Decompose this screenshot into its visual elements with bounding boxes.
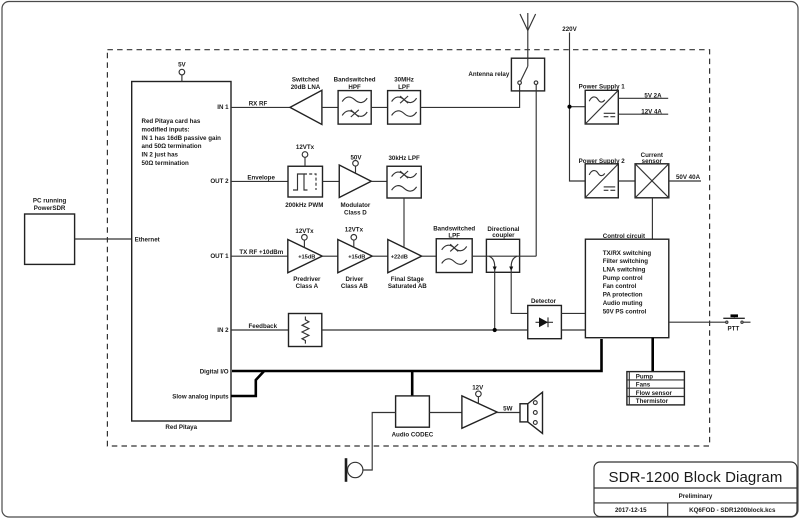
svg-text:TX/RX switching: TX/RX switching [603, 250, 652, 257]
svg-text:LPF: LPF [448, 233, 460, 240]
svg-text:Saturated AB: Saturated AB [388, 283, 427, 290]
svg-text:Fan control: Fan control [603, 283, 637, 290]
svg-text:Fans: Fans [636, 382, 651, 389]
svg-text:Final Stage: Final Stage [391, 276, 425, 283]
svg-text:Pump control: Pump control [603, 275, 643, 282]
svg-text:KQ6FOD - SDR1200block.kcs: KQ6FOD - SDR1200block.kcs [689, 507, 776, 514]
svg-text:Control circuit: Control circuit [603, 233, 645, 240]
svg-text:12VTx: 12VTx [345, 227, 364, 234]
svg-text:RX RF: RX RF [249, 100, 268, 107]
svg-text:Driver: Driver [345, 276, 363, 283]
svg-text:Pump: Pump [636, 373, 653, 380]
svg-text:Modulator: Modulator [340, 202, 370, 209]
svg-text:2017-12-15: 2017-12-15 [615, 507, 647, 514]
svg-text:200kHz PWM: 200kHz PWM [285, 202, 323, 209]
svg-text:50V PS control: 50V PS control [603, 308, 647, 315]
svg-text:modified inputs:: modified inputs: [142, 126, 190, 133]
svg-text:Predriver: Predriver [293, 276, 321, 283]
svg-text:+15dB: +15dB [298, 255, 315, 261]
svg-text:IN 1 has 16dB passive gain: IN 1 has 16dB passive gain [142, 135, 222, 142]
svg-text:HPF: HPF [348, 84, 361, 91]
svg-text:IN 2: IN 2 [217, 327, 229, 334]
svg-text:IN 1: IN 1 [217, 104, 229, 111]
svg-text:Ethernet: Ethernet [135, 236, 160, 243]
svg-text:12V 4A: 12V 4A [641, 108, 662, 115]
svg-text:TX RF +10dBm: TX RF +10dBm [239, 249, 283, 256]
svg-text:5W: 5W [503, 405, 512, 412]
svg-text:Bandswitched: Bandswitched [433, 226, 475, 233]
svg-text:5V 2A: 5V 2A [644, 93, 662, 100]
svg-text:SDR-1200 Block Diagram: SDR-1200 Block Diagram [609, 469, 783, 486]
svg-text:12V: 12V [472, 384, 484, 391]
svg-text:Slow analog inputs: Slow analog inputs [172, 393, 229, 400]
svg-text:IN 2 just has: IN 2 just has [142, 152, 179, 159]
svg-text:Switched: Switched [292, 77, 319, 84]
svg-text:Preliminary: Preliminary [679, 493, 713, 500]
svg-text:Power Supply 2: Power Supply 2 [579, 158, 626, 165]
svg-text:OUT 2: OUT 2 [210, 178, 229, 185]
svg-text:Envelope: Envelope [247, 174, 275, 181]
svg-text:coupler: coupler [492, 232, 515, 239]
svg-text:Class AB: Class AB [341, 283, 368, 290]
svg-text:and 50Ω termination: and 50Ω termination [142, 143, 202, 150]
svg-text:Digital I/O: Digital I/O [200, 368, 229, 375]
svg-text:Detector: Detector [531, 298, 557, 305]
svg-text:Filter switching: Filter switching [603, 258, 649, 265]
svg-text:Power Supply 1: Power Supply 1 [579, 84, 626, 91]
svg-text:Audio CODEC: Audio CODEC [392, 431, 434, 438]
svg-text:PTT: PTT [728, 325, 740, 332]
svg-text:50Ω termination: 50Ω termination [142, 160, 189, 167]
svg-text:sensor: sensor [642, 158, 663, 165]
svg-text:12VTx: 12VTx [296, 144, 315, 151]
svg-text:5V: 5V [178, 61, 186, 68]
svg-text:PA protection: PA protection [603, 292, 643, 299]
svg-text:Thermistor: Thermistor [636, 398, 669, 405]
svg-text:Red Pitaya card has: Red Pitaya card has [142, 118, 201, 125]
svg-text:Flow sensor: Flow sensor [636, 390, 673, 397]
svg-text:Feedback: Feedback [249, 323, 278, 330]
svg-text:+22dB: +22dB [391, 255, 408, 261]
svg-text:Antenna relay: Antenna relay [468, 71, 509, 78]
svg-text:220V: 220V [562, 26, 577, 33]
svg-text:Class A: Class A [296, 283, 319, 290]
svg-text:30kHz LPF: 30kHz LPF [388, 155, 420, 162]
svg-text:Bandswitched: Bandswitched [334, 77, 376, 84]
svg-text:PC running: PC running [33, 197, 67, 204]
svg-text:OUT 1: OUT 1 [210, 253, 229, 260]
svg-text:30MHz: 30MHz [394, 77, 414, 84]
svg-text:PowerSDR: PowerSDR [34, 205, 66, 212]
svg-text:Class D: Class D [344, 209, 367, 216]
svg-text:Red Pitaya: Red Pitaya [165, 424, 197, 431]
svg-text:LNA switching: LNA switching [603, 267, 646, 274]
svg-text:20dB LNA: 20dB LNA [291, 84, 321, 91]
svg-text:Audio muting: Audio muting [603, 300, 643, 307]
svg-text:+15dB: +15dB [348, 255, 365, 261]
svg-text:50V 40A: 50V 40A [676, 174, 701, 181]
svg-text:LPF: LPF [398, 84, 410, 91]
